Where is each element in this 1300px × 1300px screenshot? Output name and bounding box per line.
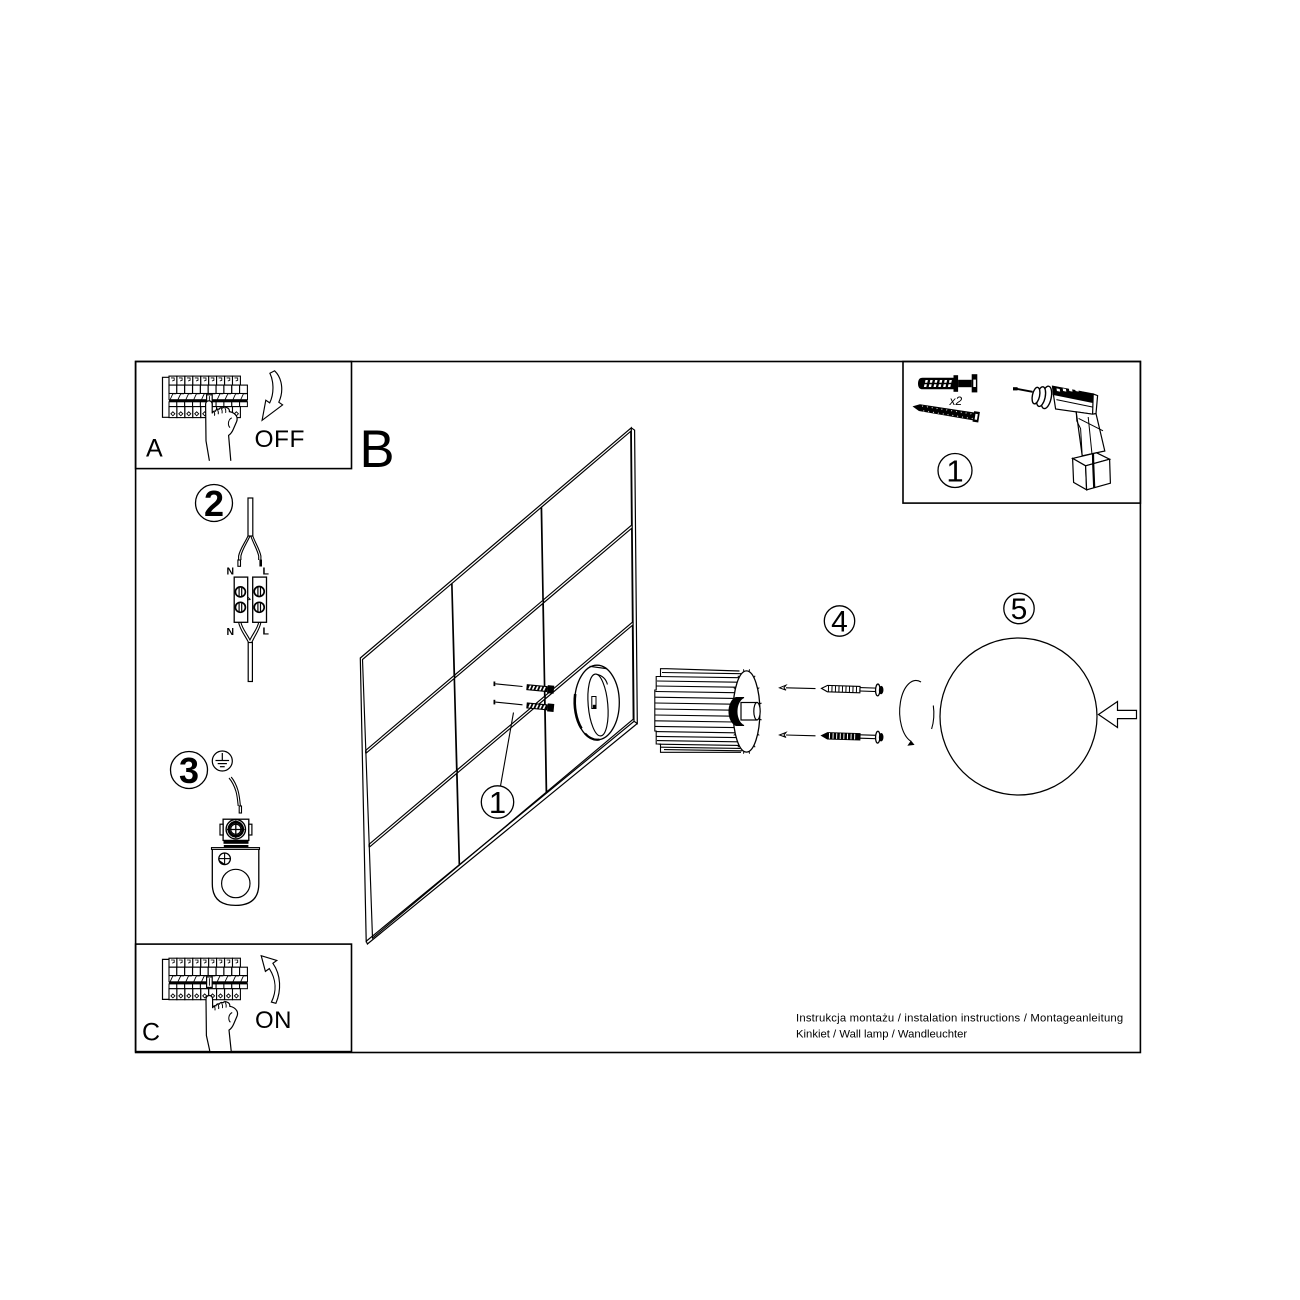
svg-text:5: 5	[1011, 593, 1028, 626]
svg-text:L: L	[263, 566, 270, 578]
svg-text:4: 4	[831, 606, 848, 639]
svg-text:1: 1	[489, 785, 506, 820]
svg-text:C: C	[142, 1019, 160, 1047]
svg-text:3: 3	[179, 750, 199, 791]
svg-text:x2: x2	[949, 394, 963, 408]
svg-text:B: B	[360, 420, 395, 479]
svg-text:2: 2	[204, 483, 224, 524]
svg-text:N: N	[227, 566, 235, 578]
svg-text:Kinkiet / Wall lamp / Wandleuc: Kinkiet / Wall lamp / Wandleuchter	[796, 1029, 967, 1041]
svg-text:Instrukcja montażu / instalati: Instrukcja montażu / instalation instruc…	[796, 1013, 1123, 1025]
svg-text:N: N	[227, 626, 235, 638]
svg-text:A: A	[146, 435, 163, 463]
svg-text:ON: ON	[255, 1007, 292, 1034]
svg-text:OFF: OFF	[255, 426, 306, 453]
svg-text:L: L	[263, 626, 270, 638]
svg-text:1: 1	[946, 454, 963, 489]
